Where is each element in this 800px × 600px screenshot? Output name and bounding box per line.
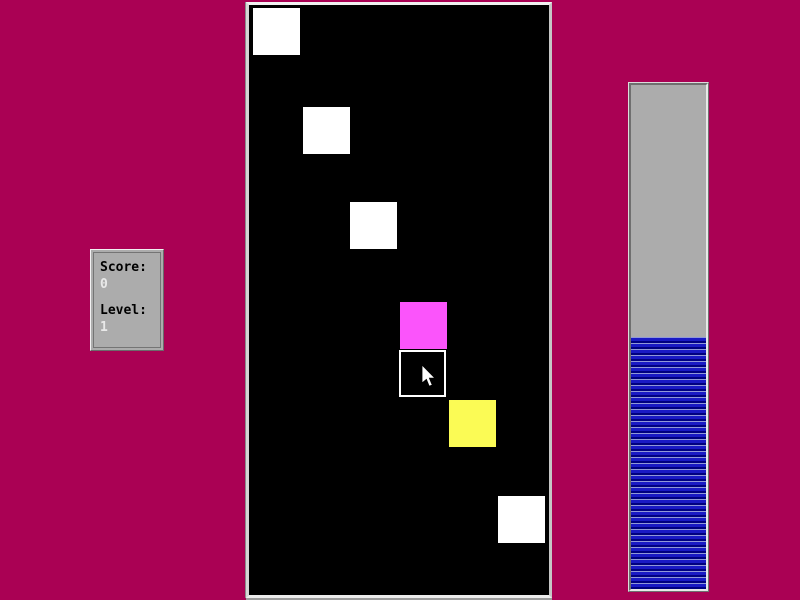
game-square[interactable]: [350, 202, 397, 249]
game-square-outlined[interactable]: [399, 350, 446, 397]
game-square[interactable]: [400, 302, 447, 349]
score-panel-inner: Score: 0 Level: 1: [93, 252, 161, 348]
level-group: Level: 1: [100, 302, 160, 336]
score-value: 0: [100, 276, 160, 293]
game-square[interactable]: [303, 107, 350, 154]
score-panel: Score: 0 Level: 1: [90, 249, 164, 351]
level-progress-gauge: [628, 82, 709, 592]
game-square[interactable]: [449, 400, 496, 447]
level-progress-track: [629, 83, 708, 591]
level-progress-fill: [631, 337, 706, 589]
playfield: [246, 2, 552, 598]
game-square[interactable]: [498, 496, 545, 543]
score-label: Score:: [100, 259, 160, 276]
level-value: 1: [100, 319, 160, 336]
game-square[interactable]: [253, 8, 300, 55]
score-group: Score: 0: [100, 259, 160, 293]
level-label: Level:: [100, 302, 160, 319]
game-window: Score: 0 Level: 1: [0, 0, 800, 600]
